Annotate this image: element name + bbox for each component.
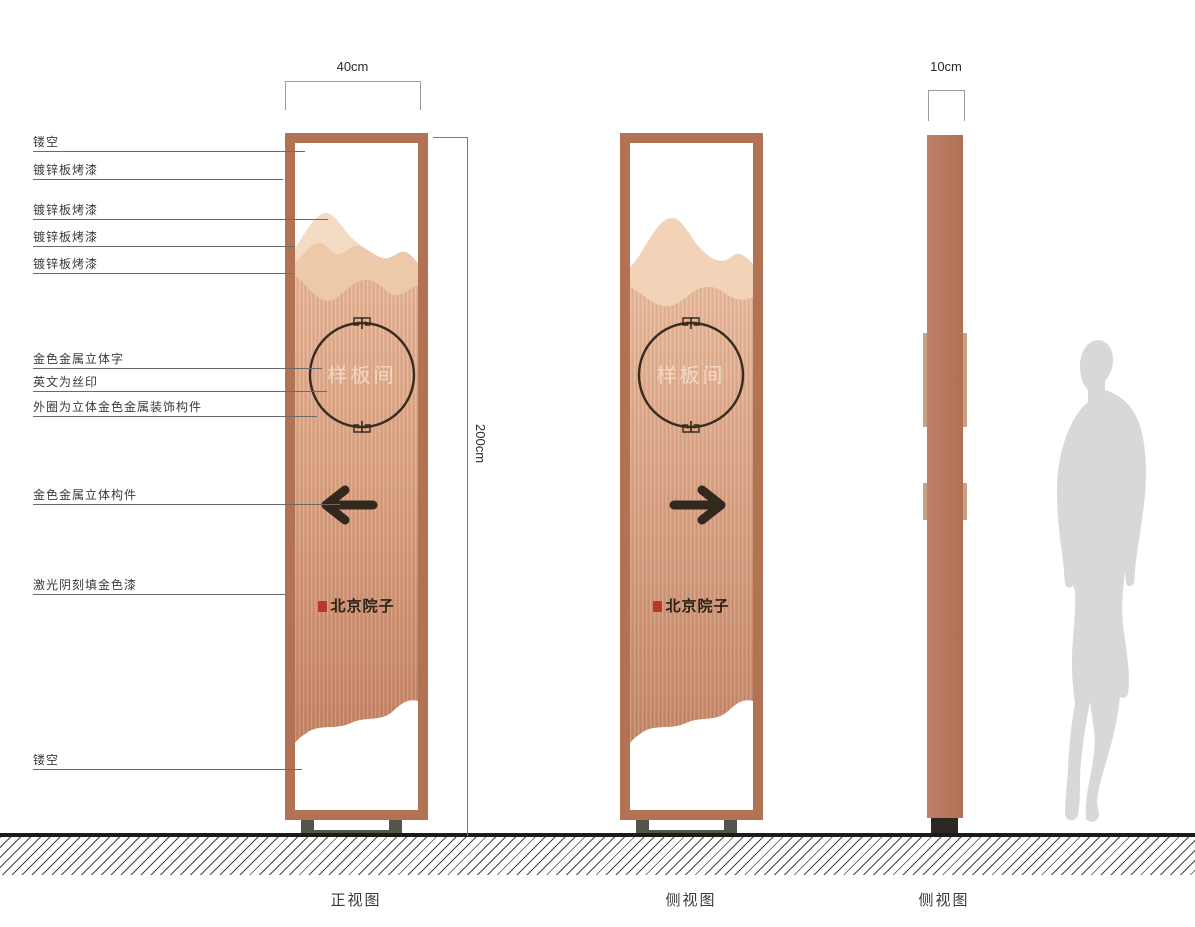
callout-hollow-bottom: 镂空: [33, 754, 302, 770]
ground-line: [0, 833, 1195, 837]
side-view-panel: 样板间 北京院子: [620, 133, 763, 820]
callout-galvanized-paint-1: 镀锌板烤漆: [33, 164, 283, 180]
caption-profile-view: 侧视图: [884, 889, 1004, 910]
seal-icon: [653, 601, 662, 612]
human-scale-silhouette: [1035, 336, 1165, 836]
callout-gold-metal-letters: 金色金属立体字: [33, 353, 322, 369]
profile-view-bar: [927, 135, 963, 818]
height-dimension-tick: [433, 137, 467, 138]
callout-galvanized-paint-4: 镀锌板烤漆: [33, 258, 292, 274]
callout-english-silkscreen: 英文为丝印: [33, 376, 327, 392]
circle-room-label: 样板间: [657, 364, 726, 387]
ground-hatch: [0, 837, 1195, 875]
callout-outer-ring-gold-ornament: 外圈为立体金色金属装饰构件: [33, 401, 317, 417]
signage-technical-drawing: 镂空 镀锌板烤漆 镀锌板烤漆 镀锌板烤漆 镀锌板烤漆 金色金属立体字 英文为丝印…: [0, 0, 1195, 927]
caption-side-view: 侧视图: [631, 889, 751, 910]
width-dimension-label: 40cm: [285, 59, 420, 74]
callout-galvanized-paint-3: 镀锌板烤漆: [33, 231, 295, 247]
thickness-dimension-bracket: [928, 90, 965, 121]
panel-body-brush-texture: [630, 287, 753, 743]
circle-room-label: 样板间: [328, 364, 397, 387]
height-dimension-line: [467, 137, 468, 836]
caption-front-view: 正视图: [296, 889, 416, 910]
brand-logo-text: 北京院子: [330, 599, 394, 615]
callout-gold-metal-component: 金色金属立体构件: [33, 489, 340, 505]
callout-galvanized-paint-2: 镀锌板烤漆: [33, 204, 328, 220]
brand-logo: 北京院子: [295, 595, 418, 616]
front-view-panel: 样板间 北京院子: [285, 133, 428, 820]
brand-logo-text: 北京院子: [665, 599, 729, 615]
side-panel-artwork: 样板间: [630, 143, 753, 810]
seal-icon: [318, 601, 327, 612]
thickness-dimension-label: 10cm: [928, 59, 964, 74]
front-panel-artwork: 样板间: [295, 143, 418, 810]
callout-laser-engraved-gold: 激光阴刻填金色漆: [33, 579, 285, 595]
callout-hollow-top: 镂空: [33, 136, 305, 152]
brand-logo: 北京院子: [630, 595, 753, 616]
height-dimension-label: 200cm: [473, 424, 488, 463]
width-dimension-bracket: [285, 81, 421, 110]
